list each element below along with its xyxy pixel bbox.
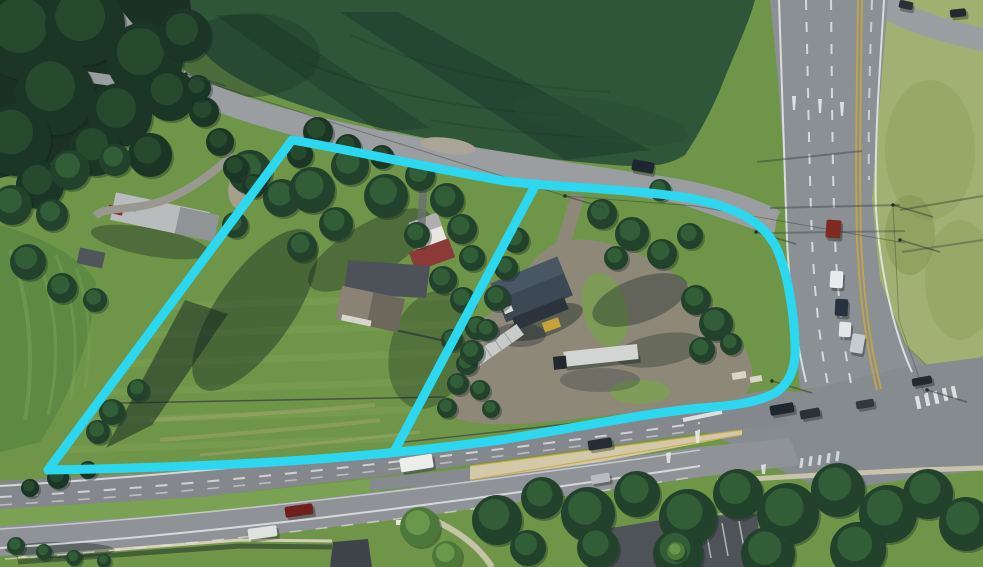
aerial-photo-canvas [0,0,983,567]
aerial-photo [0,0,983,567]
